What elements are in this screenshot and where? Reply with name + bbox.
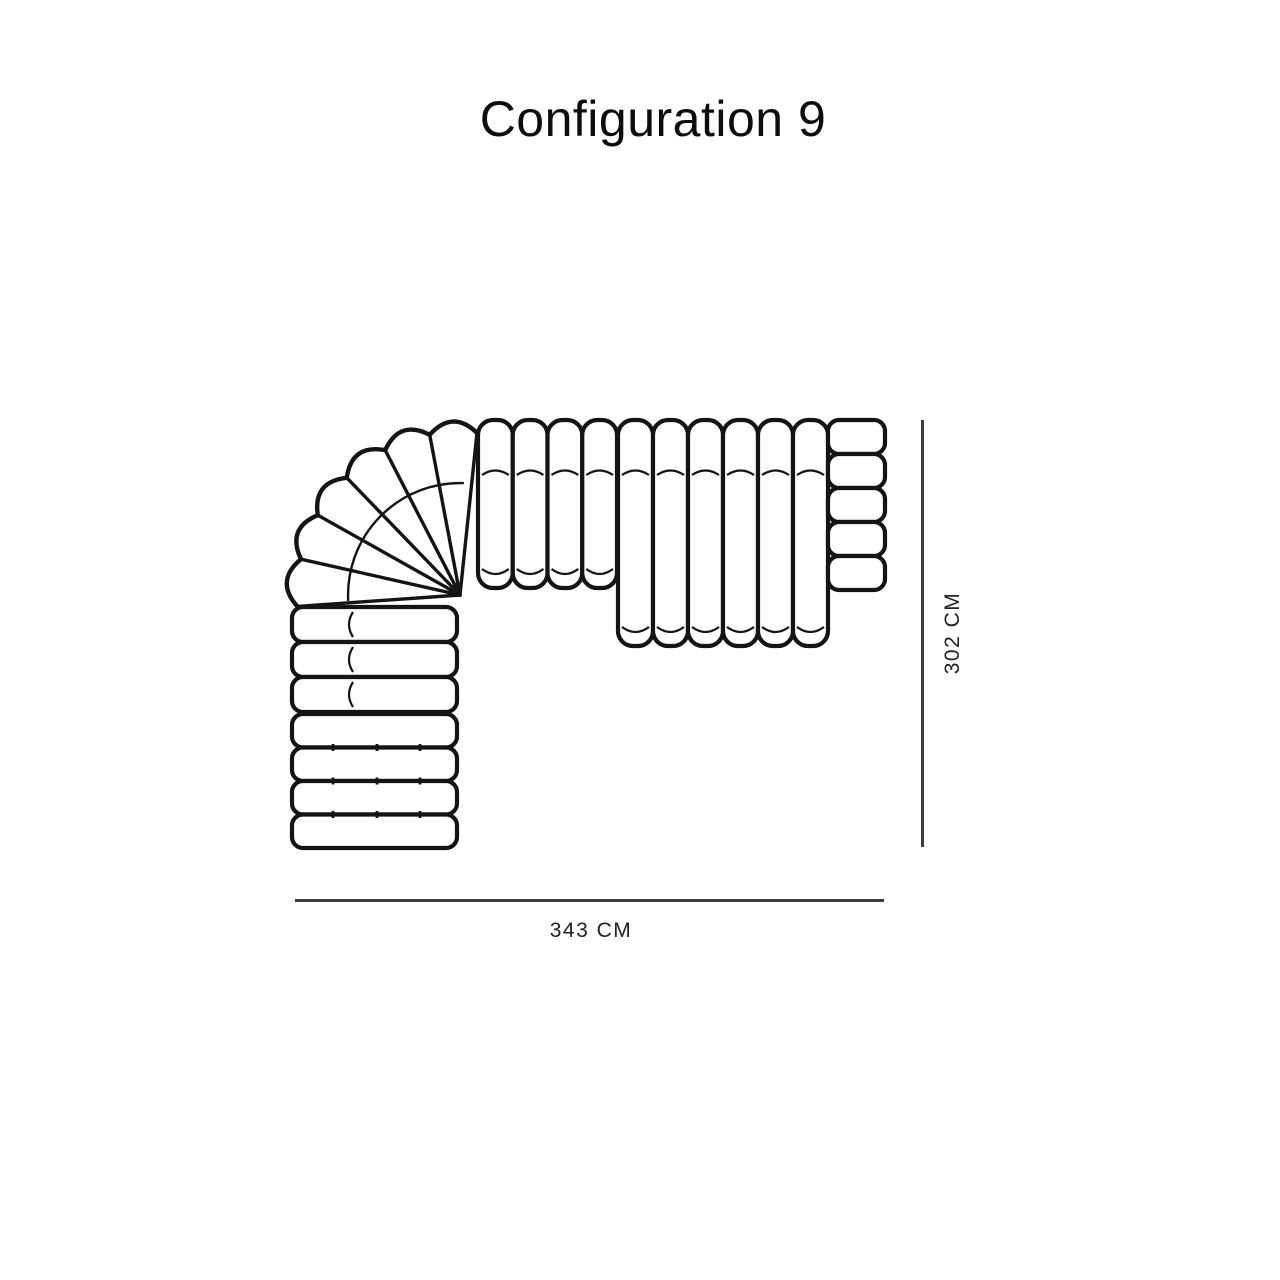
height-dimension: 302 CM bbox=[923, 420, 965, 847]
diagram-page: Configuration 9 bbox=[0, 0, 1280, 1280]
height-dimension-label: 302 CM bbox=[941, 592, 964, 675]
top-straight-module-short bbox=[478, 420, 617, 588]
width-dimension: 343 CM bbox=[295, 901, 884, 943]
corner-curve-module bbox=[287, 422, 478, 607]
width-dimension-label: 343 CM bbox=[550, 919, 633, 942]
left-straight-module-lower bbox=[292, 714, 457, 848]
left-straight-module-upper bbox=[292, 607, 457, 712]
right-armrest-module bbox=[828, 420, 885, 590]
top-straight-module-long bbox=[618, 420, 828, 646]
sofa-configuration-diagram: 302 CM 343 CM bbox=[0, 0, 1280, 1280]
